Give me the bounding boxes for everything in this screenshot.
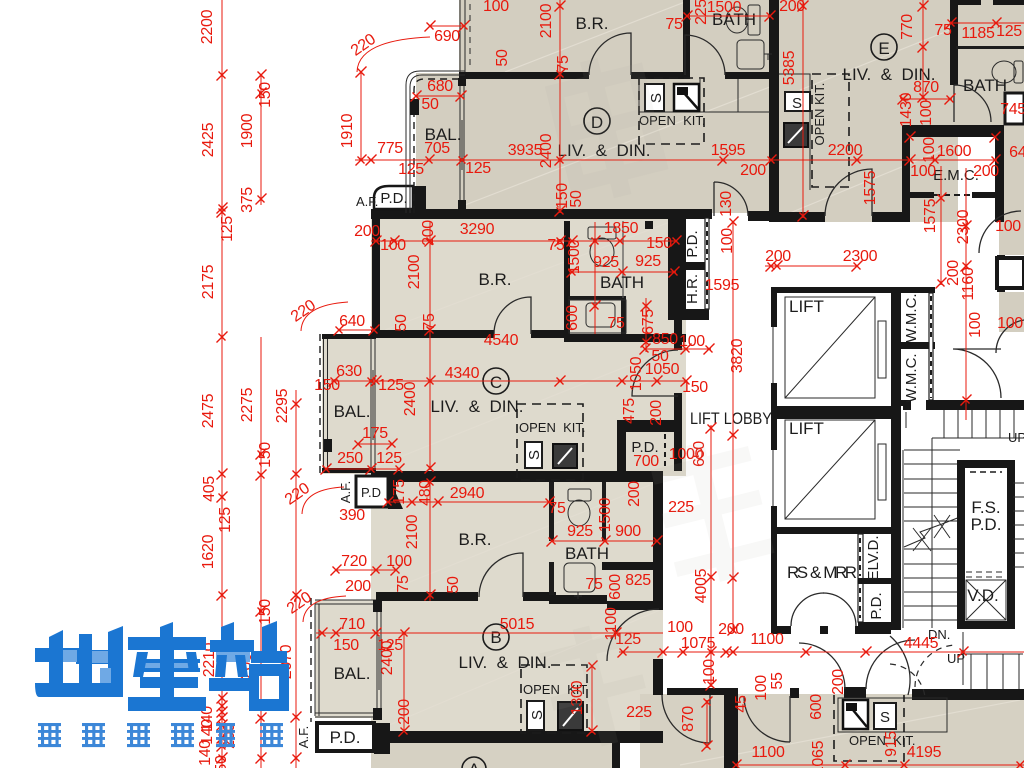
svg-text:100: 100 [667, 619, 693, 636]
svg-text:1100: 1100 [751, 744, 785, 761]
svg-text:B.R.: B.R. [458, 530, 491, 549]
svg-text:480: 480 [417, 480, 434, 506]
svg-text:BAL.: BAL. [334, 402, 371, 421]
svg-text:2100: 2100 [406, 254, 423, 289]
svg-text:OPEN KIT.: OPEN KIT. [812, 83, 827, 146]
svg-text:50: 50 [421, 96, 439, 113]
svg-text:1910: 1910 [339, 113, 356, 148]
svg-text:640: 640 [1009, 144, 1024, 161]
svg-text:100: 100 [386, 553, 412, 570]
svg-text:1185: 1185 [961, 25, 995, 42]
svg-text:UP: UP [1008, 430, 1024, 445]
svg-text:A.F.: A.F. [356, 194, 378, 209]
svg-text:100: 100 [753, 675, 770, 701]
svg-text:50: 50 [393, 314, 410, 332]
svg-text:2400: 2400 [379, 640, 396, 675]
svg-text:W.M.C.: W.M.C. [903, 293, 920, 342]
svg-text:1050: 1050 [645, 361, 680, 378]
svg-text:125: 125 [217, 507, 234, 533]
svg-text:150: 150 [257, 599, 274, 625]
svg-text:125: 125 [219, 216, 236, 242]
svg-text:150: 150 [314, 377, 340, 394]
svg-text:720: 720 [341, 553, 367, 570]
svg-text:50: 50 [568, 190, 585, 208]
svg-text:5015: 5015 [500, 616, 535, 633]
svg-text:75: 75 [555, 55, 572, 73]
svg-text:150: 150 [257, 442, 274, 468]
svg-text:690: 690 [434, 28, 460, 45]
svg-text:200: 200 [396, 699, 413, 725]
svg-text:2100: 2100 [538, 3, 555, 38]
svg-text:825: 825 [625, 572, 651, 589]
svg-text:125: 125 [398, 161, 424, 178]
svg-text:175: 175 [391, 479, 408, 505]
svg-text:E.M.C.: E.M.C. [933, 167, 979, 184]
svg-text:200: 200 [718, 621, 744, 638]
svg-text:75: 75 [421, 313, 438, 331]
svg-text:45: 45 [733, 695, 750, 713]
svg-text:100: 100 [995, 218, 1021, 235]
svg-text:4340: 4340 [445, 365, 480, 382]
svg-text:100: 100 [918, 100, 935, 126]
svg-text:E: E [878, 39, 889, 58]
svg-text:V.D.: V.D. [967, 586, 999, 605]
svg-text:200: 200 [779, 0, 805, 15]
svg-text:W.M.C.: W.M.C. [903, 353, 920, 402]
svg-text:850: 850 [652, 331, 678, 348]
svg-text:200: 200 [765, 248, 791, 265]
svg-text:2200: 2200 [828, 142, 863, 159]
svg-text:2300: 2300 [843, 248, 878, 265]
svg-text:1100: 1100 [750, 631, 784, 648]
svg-text:100: 100 [719, 228, 736, 254]
svg-text:125: 125 [378, 377, 404, 394]
svg-text:100: 100 [910, 163, 936, 180]
svg-text:1600: 1600 [937, 143, 972, 160]
svg-text:S: S [880, 709, 890, 726]
svg-text:600: 600 [607, 574, 624, 600]
svg-text:1430: 1430 [898, 92, 915, 127]
svg-text:100: 100 [380, 237, 406, 254]
svg-text:390: 390 [339, 507, 365, 524]
svg-text:125: 125 [376, 450, 402, 467]
svg-text:1575: 1575 [922, 198, 939, 233]
svg-text:LIFT: LIFT [789, 297, 824, 316]
svg-text:50: 50 [213, 755, 230, 768]
svg-text:2175: 2175 [200, 264, 217, 299]
svg-text:P.D.: P.D. [971, 515, 1002, 534]
svg-text:770: 770 [899, 14, 916, 40]
svg-text:710: 710 [339, 616, 365, 633]
svg-text:4005: 4005 [693, 568, 710, 603]
svg-text:870: 870 [680, 706, 697, 732]
svg-text:H.R.: H.R. [684, 274, 701, 304]
svg-text:475: 475 [621, 398, 638, 424]
svg-text:705: 705 [424, 140, 450, 157]
svg-text:775: 775 [377, 140, 403, 157]
svg-text:P.D.: P.D. [868, 592, 885, 619]
svg-text:P.D.: P.D. [684, 230, 701, 257]
svg-text:1500: 1500 [566, 239, 583, 274]
svg-text:200: 200 [420, 220, 437, 246]
svg-text:130: 130 [718, 191, 735, 217]
svg-text:A.F.: A.F. [338, 481, 353, 503]
svg-text:250: 250 [337, 450, 363, 467]
svg-text:50: 50 [494, 49, 511, 67]
svg-text:75: 75 [395, 575, 412, 593]
svg-text:BATH: BATH [600, 273, 644, 292]
svg-text:2275: 2275 [239, 387, 256, 422]
svg-text:900: 900 [615, 523, 641, 540]
svg-text:LIV. & DIN.: LIV. & DIN. [459, 653, 552, 672]
svg-text:200: 200 [830, 669, 847, 695]
svg-text:RS & MRR: RS & MRR [787, 563, 857, 582]
svg-text:2295: 2295 [274, 388, 291, 423]
svg-text:ELV.D.: ELV.D. [865, 535, 882, 580]
svg-text:915: 915 [883, 731, 900, 757]
svg-text:1160: 1160 [960, 267, 977, 301]
svg-text:600: 600 [808, 694, 825, 720]
svg-text:100: 100 [997, 315, 1023, 332]
svg-text:50: 50 [445, 576, 462, 594]
svg-text:200: 200 [354, 223, 380, 240]
svg-text:A.F.: A.F. [296, 726, 311, 748]
svg-text:75: 75 [547, 237, 565, 254]
svg-text:75: 75 [607, 315, 625, 332]
svg-text:140: 140 [197, 740, 214, 766]
svg-text:100: 100 [921, 137, 938, 163]
svg-text:LIFT: LIFT [789, 419, 824, 438]
svg-text:4195: 4195 [907, 744, 942, 761]
svg-text:100: 100 [967, 312, 984, 338]
svg-text:925: 925 [567, 523, 593, 540]
svg-text:405: 405 [201, 476, 218, 502]
svg-text:LIFT LOBBY: LIFT LOBBY [690, 410, 772, 428]
svg-text:125: 125 [996, 23, 1022, 40]
svg-text:700: 700 [633, 453, 659, 470]
svg-text:150: 150 [682, 379, 708, 396]
svg-text:100: 100 [483, 0, 509, 15]
svg-text:1850: 1850 [604, 220, 639, 237]
svg-text:75: 75 [665, 16, 683, 33]
svg-text:1575: 1575 [862, 170, 879, 205]
svg-text:LIV. & DIN.: LIV. & DIN. [431, 397, 524, 416]
svg-text:P.D.: P.D. [330, 728, 361, 747]
svg-text:75: 75 [585, 576, 603, 593]
svg-text:640: 640 [339, 313, 365, 330]
svg-text:A: A [468, 760, 480, 768]
svg-text:BATH: BATH [565, 544, 609, 563]
svg-text:200: 200 [345, 578, 371, 595]
svg-text:2425: 2425 [200, 122, 217, 157]
svg-text:225: 225 [693, 0, 710, 25]
svg-text:375: 375 [239, 187, 256, 213]
svg-text:150: 150 [257, 82, 274, 108]
svg-text:150: 150 [646, 235, 672, 252]
svg-text:B.R.: B.R. [478, 270, 511, 289]
svg-text:1620: 1620 [200, 534, 217, 569]
svg-text:745: 745 [1000, 101, 1024, 118]
svg-text:225: 225 [626, 704, 652, 721]
svg-text:P.D: P.D [361, 485, 381, 500]
svg-text:175: 175 [362, 425, 388, 442]
svg-text:4540: 4540 [484, 332, 519, 349]
svg-text:75: 75 [548, 500, 566, 517]
svg-text:925: 925 [635, 253, 661, 270]
svg-text:OPEN KIT.: OPEN KIT. [519, 420, 585, 435]
svg-text:600: 600 [564, 305, 581, 331]
svg-text:1065: 1065 [810, 740, 827, 768]
svg-text:1595: 1595 [711, 142, 746, 159]
svg-text:125: 125 [465, 160, 491, 177]
svg-text:100: 100 [701, 659, 718, 685]
svg-text:3290: 3290 [460, 221, 495, 238]
svg-text:3820: 3820 [729, 338, 746, 373]
svg-text:2475: 2475 [200, 393, 217, 428]
svg-text:75: 75 [934, 22, 952, 39]
svg-text:P.D.: P.D. [380, 190, 407, 207]
svg-text:BATH: BATH [963, 76, 1007, 95]
svg-text:680: 680 [427, 78, 453, 95]
svg-text:1595: 1595 [705, 277, 740, 294]
svg-text:200: 200 [626, 481, 643, 507]
svg-text:5385: 5385 [781, 50, 798, 85]
svg-text:200: 200 [740, 162, 766, 179]
svg-text:4445: 4445 [904, 635, 939, 652]
svg-text:2200: 2200 [199, 9, 216, 44]
svg-text:S: S [792, 95, 802, 112]
svg-text:55: 55 [769, 672, 786, 690]
svg-text:100: 100 [679, 333, 705, 350]
svg-text:BAL.: BAL. [334, 664, 371, 683]
svg-text:S: S [526, 450, 543, 460]
svg-text:1075: 1075 [681, 635, 716, 652]
svg-text:2300: 2300 [955, 209, 972, 244]
svg-text:2400: 2400 [538, 133, 555, 168]
svg-text:B.R.: B.R. [575, 14, 608, 33]
svg-text:1500: 1500 [597, 497, 614, 532]
svg-text:2100: 2100 [404, 514, 421, 549]
svg-text:150: 150 [333, 637, 359, 654]
svg-text:200: 200 [973, 163, 999, 180]
svg-text:2940: 2940 [450, 485, 485, 502]
svg-text:630: 630 [336, 363, 362, 380]
svg-text:870: 870 [913, 79, 939, 96]
svg-text:1050: 1050 [628, 356, 645, 391]
svg-text:1500: 1500 [707, 0, 742, 16]
svg-text:925: 925 [593, 254, 619, 271]
svg-text:C: C [490, 373, 502, 392]
svg-text:1900: 1900 [239, 113, 256, 148]
svg-text:2400: 2400 [402, 381, 419, 416]
svg-text:S: S [529, 710, 546, 720]
svg-text:200: 200 [648, 400, 665, 426]
